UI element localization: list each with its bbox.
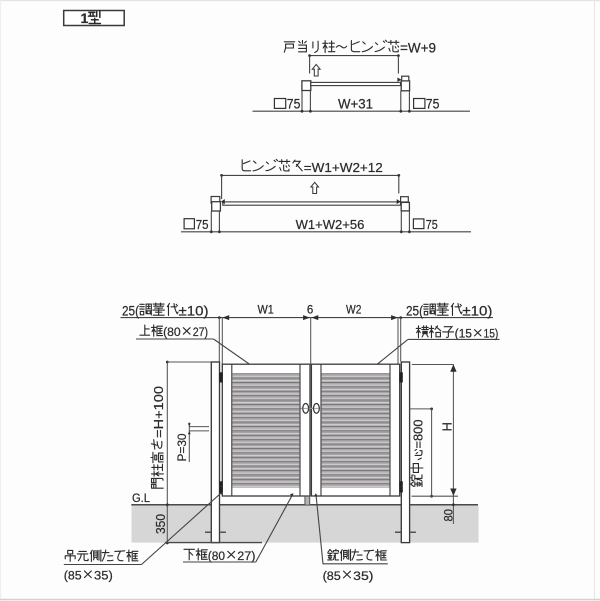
svg-text:75: 75 bbox=[196, 217, 209, 232]
svg-text:W1+W2+56: W1+W2+56 bbox=[296, 217, 365, 232]
svg-text:(85: (85 bbox=[64, 569, 82, 583]
svg-text:W1: W1 bbox=[258, 304, 274, 317]
svg-text:25(: 25( bbox=[122, 303, 139, 318]
svg-text:(85: (85 bbox=[323, 569, 341, 583]
svg-text:P=30: P=30 bbox=[175, 433, 189, 461]
svg-text:75: 75 bbox=[426, 97, 440, 112]
svg-text:27): 27) bbox=[237, 549, 255, 563]
svg-text:35): 35) bbox=[353, 569, 373, 583]
svg-text:75: 75 bbox=[426, 217, 438, 232]
svg-text:±10): ±10) bbox=[462, 303, 492, 318]
svg-text:1: 1 bbox=[81, 11, 89, 27]
svg-text:6: 6 bbox=[307, 304, 313, 317]
svg-text:=W+9: =W+9 bbox=[400, 41, 436, 56]
svg-text:W+31: W+31 bbox=[338, 96, 373, 111]
svg-text:27): 27) bbox=[193, 325, 208, 339]
svg-text:=H+100: =H+100 bbox=[151, 386, 166, 438]
svg-text:80: 80 bbox=[441, 509, 455, 521]
svg-text:H: H bbox=[439, 422, 454, 431]
svg-text:=W1+W2+12: =W1+W2+12 bbox=[304, 160, 383, 175]
svg-text:±10): ±10) bbox=[179, 303, 209, 318]
svg-text:G.L: G.L bbox=[132, 491, 150, 505]
svg-text:350: 350 bbox=[154, 514, 168, 534]
svg-text:35): 35) bbox=[94, 569, 113, 583]
svg-text:(80: (80 bbox=[208, 549, 225, 563]
svg-text:75: 75 bbox=[287, 97, 301, 112]
svg-text:(80: (80 bbox=[163, 325, 181, 339]
svg-text:=800: =800 bbox=[411, 420, 426, 449]
svg-text:(15: (15 bbox=[455, 327, 472, 341]
svg-text:25(: 25( bbox=[406, 303, 423, 318]
svg-text:15): 15) bbox=[484, 327, 499, 341]
svg-text:W2: W2 bbox=[346, 304, 361, 317]
